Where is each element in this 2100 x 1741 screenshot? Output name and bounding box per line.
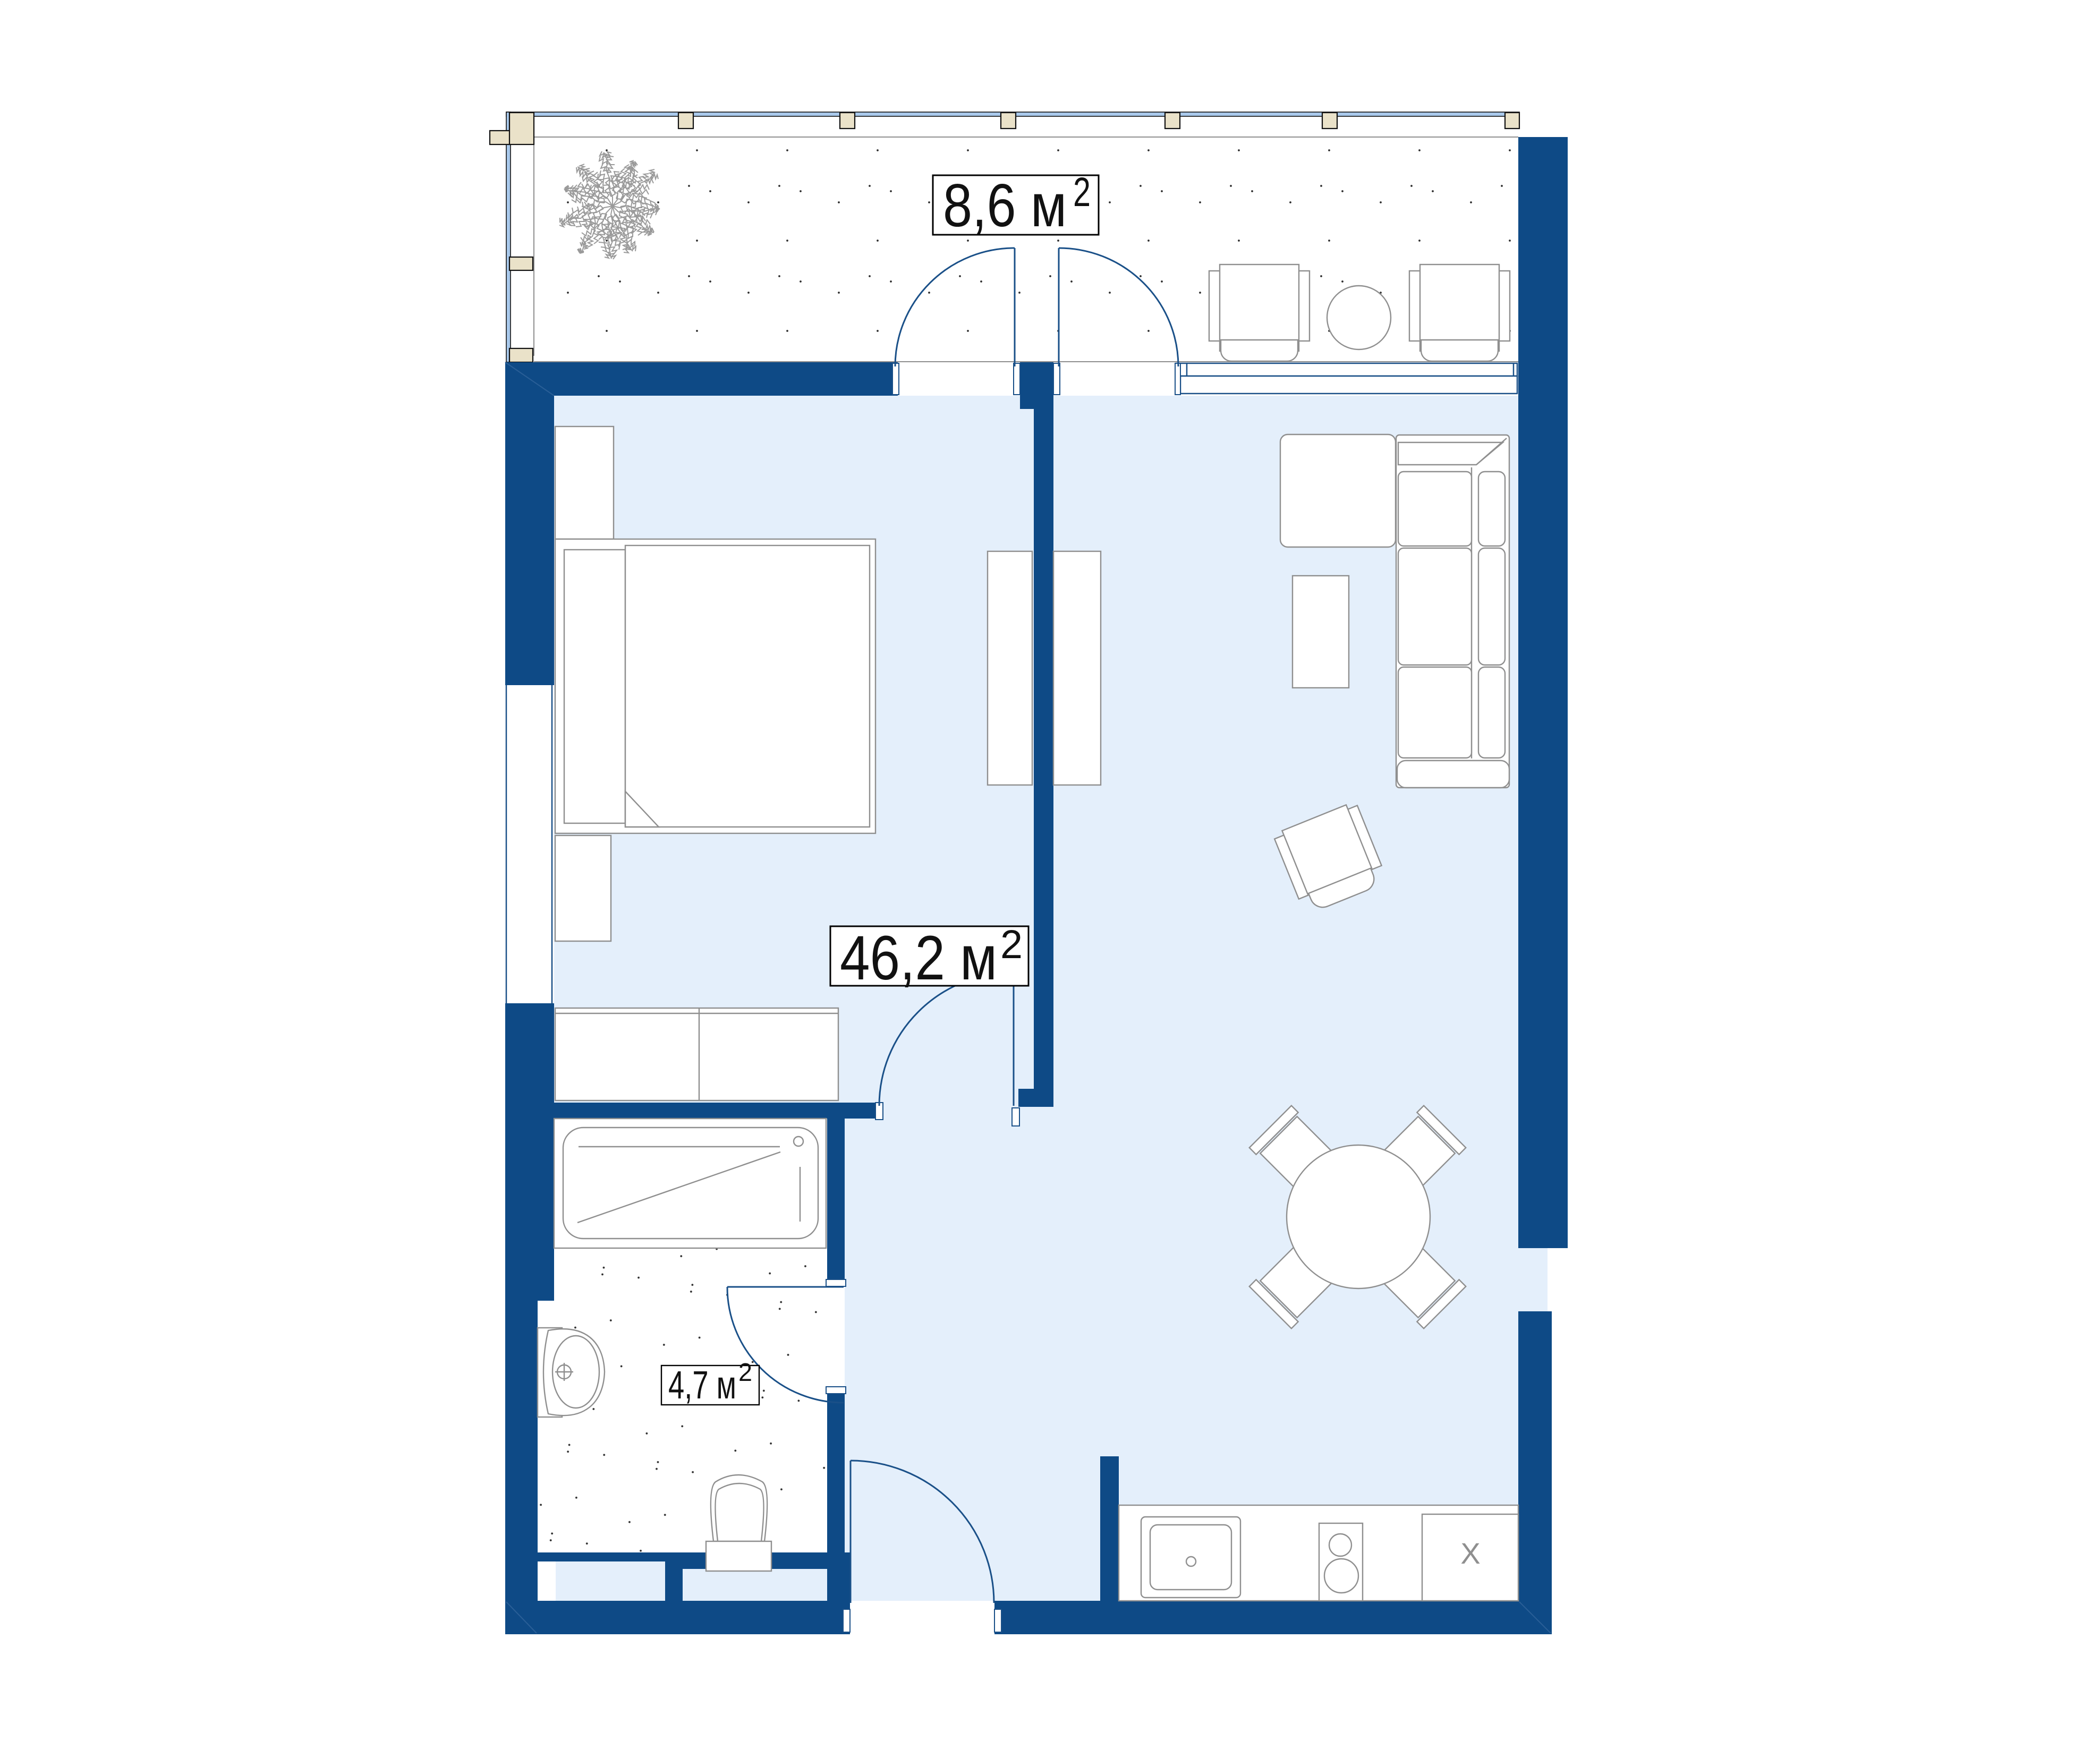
- svg-text:X: X: [1460, 1537, 1480, 1570]
- svg-text:46,2 м: 46,2 м: [840, 923, 997, 993]
- svg-text:2: 2: [1073, 169, 1091, 215]
- svg-text:2: 2: [738, 1359, 752, 1387]
- svg-text:2: 2: [1000, 922, 1023, 967]
- svg-text:4,7 м: 4,7 м: [668, 1363, 736, 1407]
- svg-text:8,6 м: 8,6 м: [943, 172, 1067, 240]
